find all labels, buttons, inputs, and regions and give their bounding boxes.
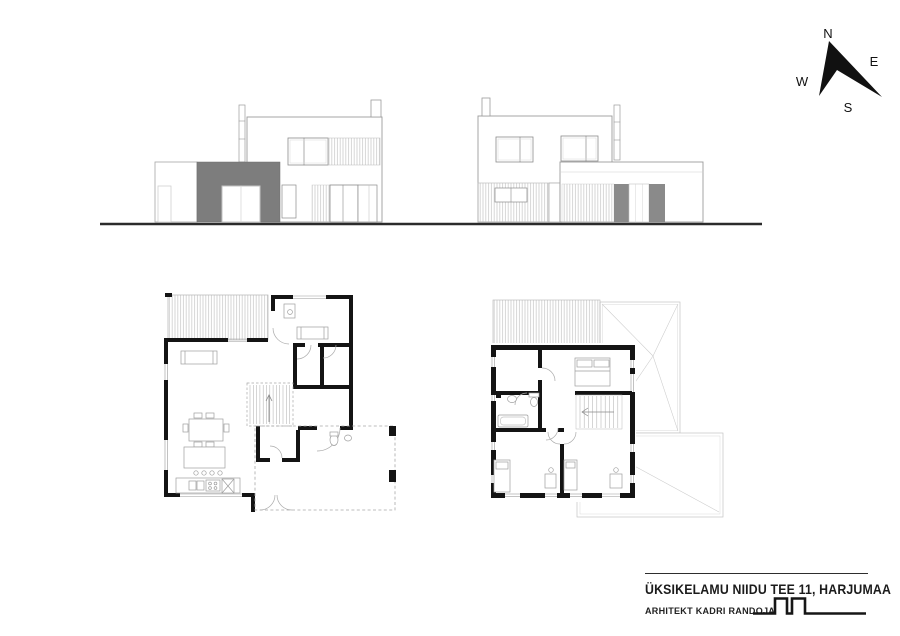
drawing-sheet: N E W S [0, 0, 900, 636]
stairs [247, 383, 293, 426]
project-title: ÜKSIKELAMU NIIDU TEE 11, HARJUMAA [645, 581, 891, 597]
compass-east-label: E [870, 54, 879, 69]
flue [614, 105, 620, 160]
upper-floor-plan-drawing [489, 300, 723, 517]
upper-window [496, 137, 533, 162]
sink [345, 435, 352, 441]
glazed-door [330, 185, 358, 222]
door-arcs [260, 328, 340, 510]
chimney [482, 98, 490, 116]
chimney [371, 100, 381, 117]
castellated-line-logo [750, 596, 870, 620]
north-arrow-compass: N E W S [796, 26, 882, 115]
garage-outline [255, 426, 396, 510]
narrow-window [282, 185, 296, 218]
terrace-roof-hatch [493, 300, 600, 347]
kitchen-island [184, 447, 225, 468]
entry-door [549, 183, 560, 222]
north-arrow-icon [819, 41, 882, 97]
compass-north-label: N [823, 26, 832, 41]
upper-window [288, 138, 328, 165]
cladding-hatch [328, 138, 380, 165]
gray-door [614, 184, 629, 222]
terrace-deck [168, 295, 268, 340]
compass-south-label: S [844, 100, 853, 115]
compass-west-label: W [796, 74, 809, 89]
dining-table [189, 419, 223, 441]
architectural-drawings: N E W S [0, 0, 900, 636]
rear-elevation-drawing [478, 98, 703, 222]
logo-path [753, 599, 866, 614]
front-elevation-drawing [155, 100, 382, 222]
desk [545, 474, 556, 488]
sofa [297, 327, 328, 339]
titleblock-rule [645, 573, 868, 574]
interior-walls [256, 343, 353, 462]
upper-window [561, 136, 598, 161]
gray-door [649, 184, 665, 222]
desk [610, 474, 622, 488]
flue [239, 105, 245, 162]
ground-floor-plan-drawing [164, 293, 396, 512]
toilet [529, 393, 539, 397]
sink [508, 396, 517, 403]
